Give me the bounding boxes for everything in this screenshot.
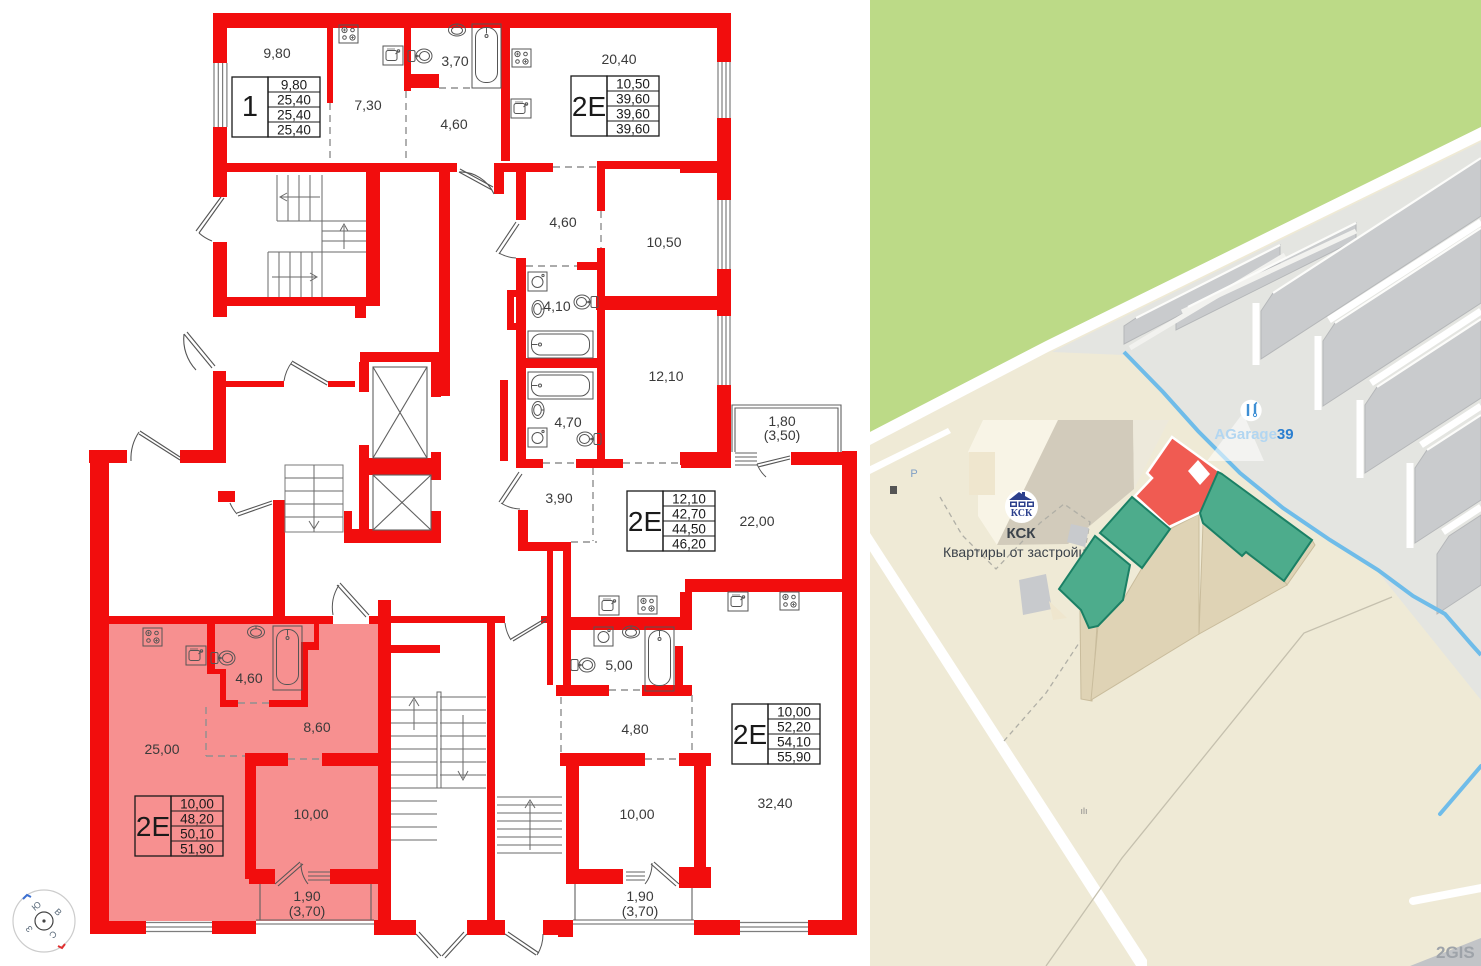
svg-text:2Е: 2Е xyxy=(628,506,662,537)
svg-text:ılı: ılı xyxy=(1080,806,1087,816)
svg-text:32,40: 32,40 xyxy=(757,795,792,811)
svg-text:10,00: 10,00 xyxy=(180,797,214,812)
svg-text:3,70: 3,70 xyxy=(441,53,468,69)
svg-text:9,80: 9,80 xyxy=(281,78,307,93)
svg-text:1,90: 1,90 xyxy=(293,888,320,904)
svg-text:55,90: 55,90 xyxy=(777,750,811,765)
svg-text:Квартиры от застройщи: Квартиры от застройщи xyxy=(943,544,1098,560)
svg-text:48,20: 48,20 xyxy=(180,812,214,827)
svg-text:4,60: 4,60 xyxy=(440,116,467,132)
svg-text:КСК: КСК xyxy=(1011,508,1033,519)
svg-text:AGarage39: AGarage39 xyxy=(1214,426,1293,443)
svg-text:2Е: 2Е xyxy=(733,719,767,750)
svg-text:3,90: 3,90 xyxy=(545,490,572,506)
svg-text:2Е: 2Е xyxy=(572,91,606,122)
svg-text:КСК: КСК xyxy=(1007,525,1037,542)
svg-text:4,80: 4,80 xyxy=(621,721,648,737)
svg-text:2Е: 2Е xyxy=(136,811,170,842)
svg-text:54,10: 54,10 xyxy=(777,735,811,750)
svg-text:(3,70): (3,70) xyxy=(289,903,326,919)
svg-text:P: P xyxy=(910,468,917,480)
svg-text:10,50: 10,50 xyxy=(646,234,681,250)
svg-text:4,60: 4,60 xyxy=(235,670,262,686)
svg-text:22,00: 22,00 xyxy=(739,513,774,529)
svg-text:1,90: 1,90 xyxy=(626,888,653,904)
svg-text:10,00: 10,00 xyxy=(619,806,654,822)
svg-text:(3,50): (3,50) xyxy=(764,427,801,443)
svg-text:9,80: 9,80 xyxy=(263,45,290,61)
svg-text:25,40: 25,40 xyxy=(277,108,311,123)
svg-text:44,50: 44,50 xyxy=(672,522,706,537)
svg-text:25,00: 25,00 xyxy=(144,741,179,757)
svg-text:8,60: 8,60 xyxy=(303,719,330,735)
svg-text:25,40: 25,40 xyxy=(277,93,311,108)
svg-text:1: 1 xyxy=(242,91,258,123)
svg-text:4,70: 4,70 xyxy=(554,414,581,430)
svg-text:46,20: 46,20 xyxy=(672,537,706,552)
svg-text:50,10: 50,10 xyxy=(180,827,214,842)
svg-text:5,00: 5,00 xyxy=(605,657,632,673)
svg-text:12,10: 12,10 xyxy=(648,368,683,384)
svg-text:52,20: 52,20 xyxy=(777,720,811,735)
svg-text:12,10: 12,10 xyxy=(672,492,706,507)
svg-text:10,00: 10,00 xyxy=(293,806,328,822)
svg-text:39,60: 39,60 xyxy=(616,107,650,122)
svg-text:39,60: 39,60 xyxy=(616,122,650,137)
svg-text:10,50: 10,50 xyxy=(616,77,650,92)
svg-text:7,30: 7,30 xyxy=(354,97,381,113)
svg-text:42,70: 42,70 xyxy=(672,507,706,522)
svg-text:39,60: 39,60 xyxy=(616,92,650,107)
svg-text:2GIS: 2GIS xyxy=(1436,943,1475,962)
svg-text:25,40: 25,40 xyxy=(277,123,311,138)
svg-text:4,60: 4,60 xyxy=(549,214,576,230)
svg-text:20,40: 20,40 xyxy=(601,51,636,67)
svg-text:(3,70): (3,70) xyxy=(622,903,659,919)
svg-text:10,00: 10,00 xyxy=(777,705,811,720)
svg-text:4,10: 4,10 xyxy=(543,298,570,314)
svg-text:51,90: 51,90 xyxy=(180,842,214,857)
